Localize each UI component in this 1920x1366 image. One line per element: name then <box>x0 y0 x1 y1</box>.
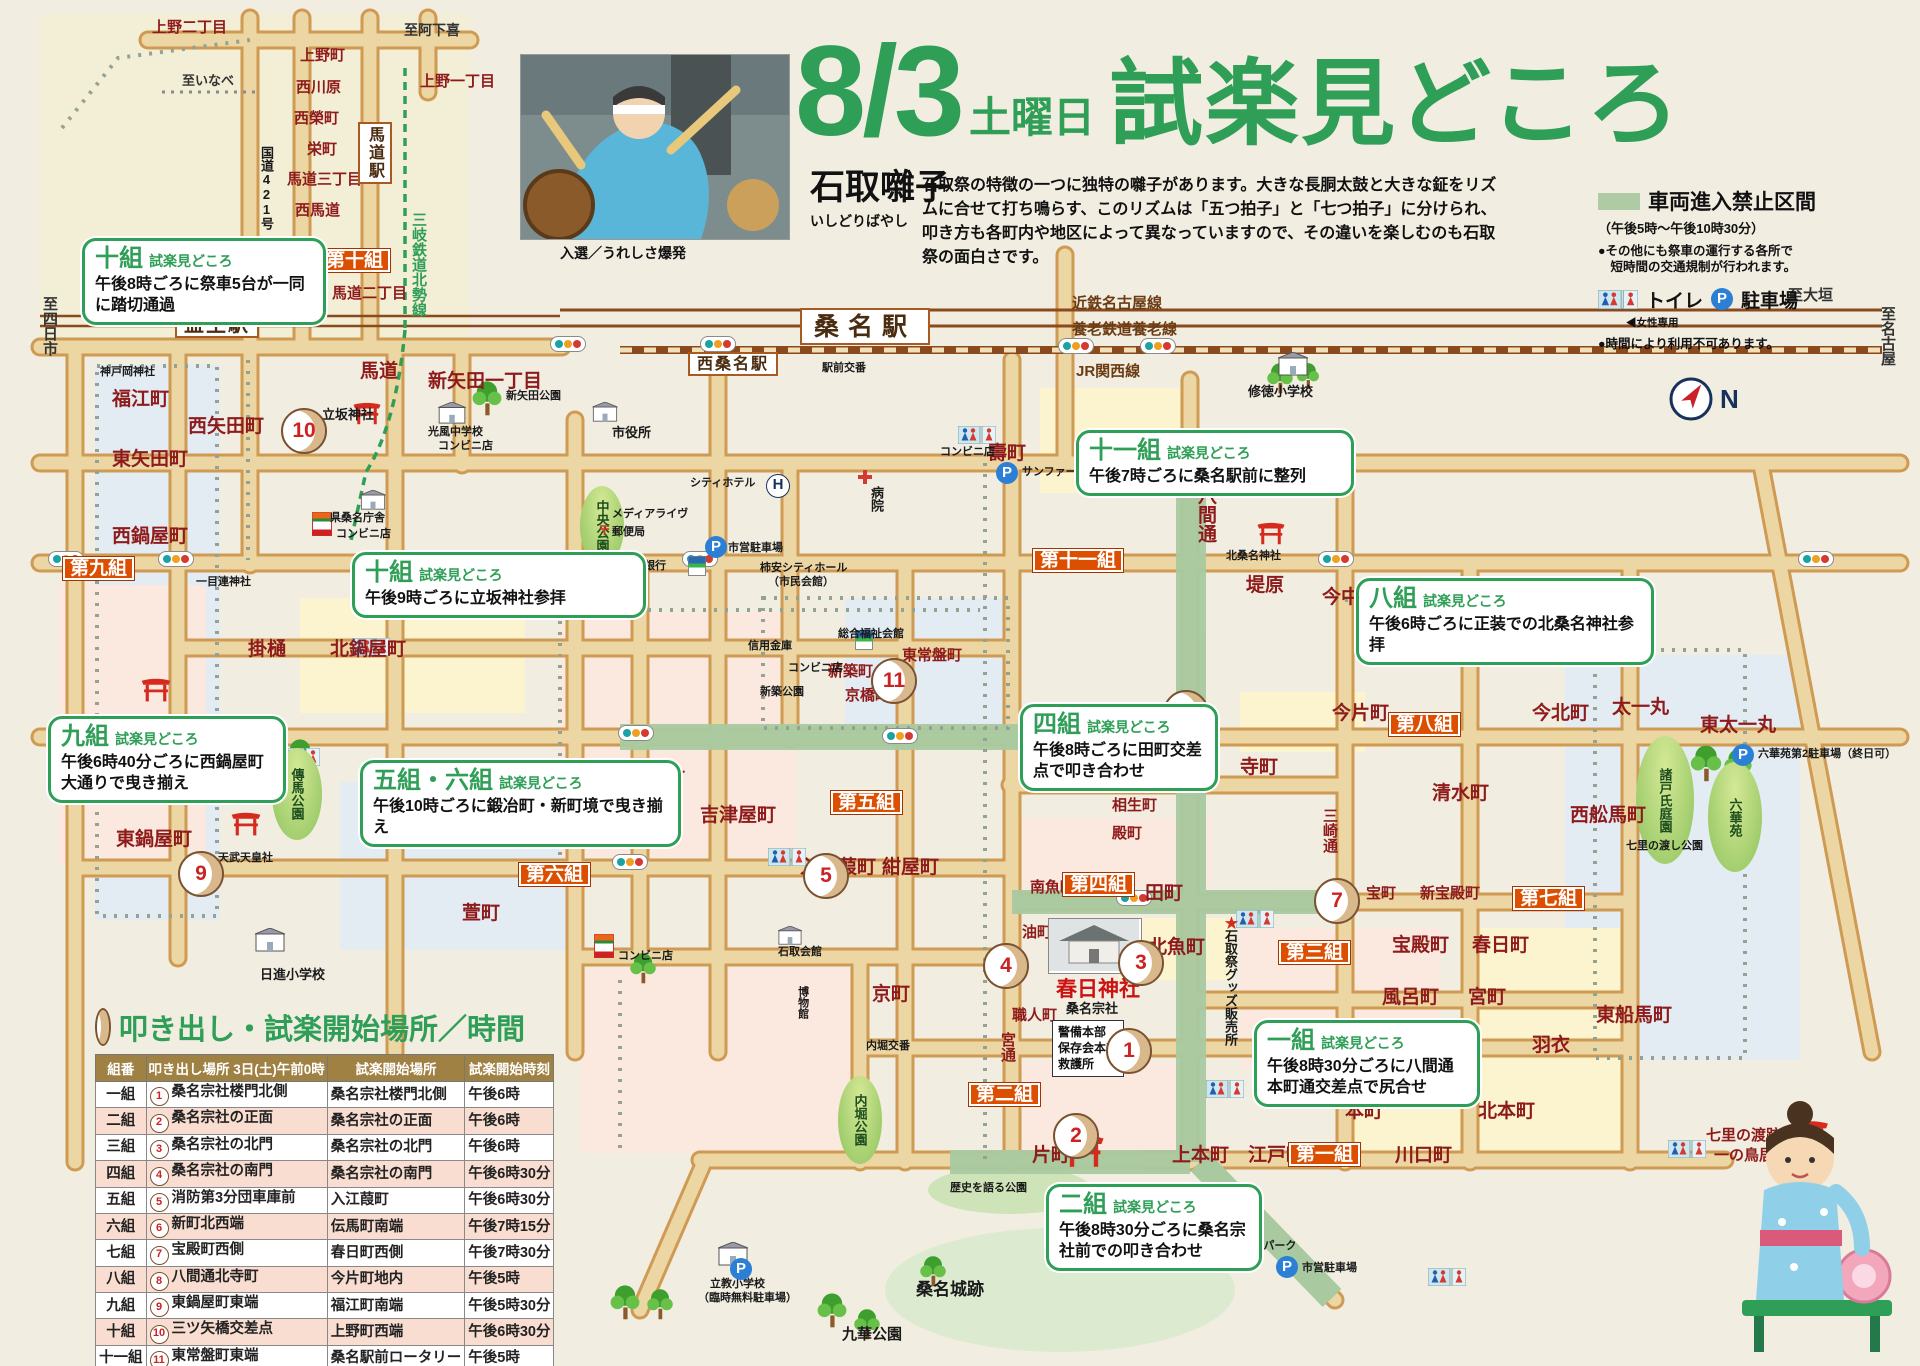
place-soja-label: 桑名宗社 <box>1066 1002 1118 1017</box>
callout-group: 二組 <box>1059 1191 1107 1218</box>
photo-caption: 入選／うれしさ爆発 <box>560 243 686 263</box>
table-row: 一組1桑名宗社楼門北側桑名宗社楼門北側午後6時 <box>96 1082 554 1108</box>
cell-group: 六組 <box>96 1213 147 1239</box>
cell-place: 桑名宗社の南門 <box>327 1161 465 1187</box>
cell-place: 春日町西側 <box>327 1240 465 1266</box>
place-label: 日進小学校 <box>260 968 325 983</box>
cell-group: 九組 <box>96 1293 147 1319</box>
callout-body: 午後8時ごろに田町交差点で叩き合わせ <box>1033 741 1205 783</box>
callout-body: 午後6時40分ごろに西鍋屋町大通りで曳き揃え <box>61 753 273 795</box>
group-box-1: 第一組 <box>1288 1142 1361 1167</box>
no-entry-time: （午後5時～午後10時30分） <box>1598 218 1898 237</box>
park-moroto-label: 諸戸氏庭園 <box>1656 768 1675 833</box>
place-label: 九華公園 <box>842 1326 902 1343</box>
place-label: 病院 <box>868 486 883 512</box>
place-label: 市営駐車場 <box>728 542 783 555</box>
parking-icon: P <box>1732 744 1754 766</box>
town-label: 羽衣 <box>1532 1036 1570 1055</box>
town-label: 西矢田町 <box>188 417 264 436</box>
parking-icon: P <box>996 462 1018 484</box>
callout-group10-crossing: 十組試楽見どころ 午後8時ごろに祭車5台が一同に踏切通過 <box>82 238 326 325</box>
cell-start-text: 桑名宗社の南門 <box>172 1163 274 1179</box>
group-box-4: 第四組 <box>1062 872 1135 897</box>
cell-place: 今片町地内 <box>327 1266 465 1292</box>
place-label: 神戸岡神社 <box>100 366 155 379</box>
parking-label: 駐車場 <box>1741 286 1798 313</box>
cell-time: 午後6時 <box>465 1082 554 1108</box>
callout-group: 一組 <box>1267 1027 1315 1054</box>
town-label: 太一丸 <box>1612 698 1669 717</box>
town-label: 今片町 <box>1332 704 1389 723</box>
title-day: 土曜日 <box>969 97 1095 139</box>
no-entry-swatch <box>1598 193 1640 210</box>
group-box-7: 第七組 <box>1512 886 1585 911</box>
town-label: 堤原 <box>1246 576 1284 595</box>
legend-note1b: 短時間の交通規制が行われます。 <box>1598 259 1898 275</box>
callout-group9: 九組試楽見どころ 午後6時40分ごろに西鍋屋町大通りで曳き揃え <box>48 716 286 803</box>
rail-jr-label: JR関西線 <box>1076 360 1140 381</box>
place-label: メディアライヴ <box>612 508 688 521</box>
cell-group: 三組 <box>96 1134 147 1160</box>
group-box-10: 第十組 <box>318 248 391 273</box>
town-label: 上野一丁目 <box>420 74 495 89</box>
callout-body: 午後8時ごろに祭車5台が一同に踏切通過 <box>95 275 313 317</box>
town-label: 馬道三丁目 <box>287 172 362 187</box>
callout-body: 午後8時30分ごろに桑名宗社前での叩き合わせ <box>1059 1221 1249 1263</box>
town-label: 西舩馬町 <box>1570 806 1646 825</box>
table-row: 二組2桑名宗社の正面桑名宗社の正面午後6時 <box>96 1108 554 1134</box>
town-label: 殿町 <box>1112 826 1142 841</box>
toilet-icon <box>1598 290 1638 309</box>
town-label: 西川原 <box>296 80 341 95</box>
town-label: 新宝殿町 <box>1420 886 1480 901</box>
legend-note2: ●時間により利用不可あります。 <box>1598 336 1898 352</box>
rail-sangi-label: 三岐鉄道北勢線 <box>408 212 429 317</box>
callout-head: 十一組試楽見どころ <box>1089 438 1341 464</box>
conbini-label: コンビニ店 <box>940 446 995 459</box>
town-label: 今北町 <box>1532 704 1589 723</box>
table-row: 十組10三ツ矢橋交差点上野町西端午後6時30分 <box>96 1319 554 1345</box>
town-label: 川口町 <box>1395 1146 1452 1165</box>
drum-number-icon: 4 <box>150 1167 169 1186</box>
callout-tag: 試楽見どころ <box>1087 719 1171 735</box>
cell-time: 午後5時 <box>465 1345 554 1366</box>
callout-tag: 試楽見どころ <box>1423 593 1507 609</box>
callout-tag: 試楽見どころ <box>499 775 583 791</box>
cell-start-text: 消防第3分団車庫前 <box>172 1190 296 1206</box>
town-label: 西馬道 <box>295 203 340 218</box>
title-main: 試楽見どころ <box>1109 62 1682 147</box>
cell-group: 十一組 <box>96 1345 147 1366</box>
place-label: シティホテル <box>690 477 755 490</box>
town-label: 萱町 <box>462 904 500 923</box>
cell-start-text: 桑名宗社の北門 <box>172 1137 274 1153</box>
place-label: 市営駐車場 <box>1302 1262 1357 1275</box>
town-label: 北鍋屋町 <box>330 640 406 659</box>
callout-body: 午後7時ごろに桑名駅前に整列 <box>1089 467 1341 488</box>
drum-number-icon: 5 <box>150 1193 169 1212</box>
goods-stand-label: ★石取祭グッズ販売所 <box>1222 916 1237 1046</box>
cell-start: 10三ツ矢橋交差点 <box>146 1319 327 1345</box>
callout-tag: 試楽見どころ <box>1167 445 1251 461</box>
no-entry-label: 車両進入禁止区間 <box>1648 186 1816 216</box>
schedule-table: 組番 叩き出し場所 3日(土)午前0時 試楽開始場所 試楽開始時刻 一組1桑名宗… <box>95 1054 554 1366</box>
cell-start-text: 三ツ矢橋交差点 <box>172 1321 274 1337</box>
town-label: 掛樋 <box>248 640 286 659</box>
park-rokkaen-label: 六華苑 <box>1726 798 1745 837</box>
callout-group5-6: 五組・六組試楽見どころ 午後10時ごろに鍛冶町・新町境で曳き揃え <box>360 760 681 847</box>
callout-group: 十組 <box>365 559 413 586</box>
callout-tag: 試楽見どころ <box>1113 1199 1197 1215</box>
drum-number-icon: 7 <box>150 1246 169 1265</box>
conbini-label: コンビニ店 <box>788 662 843 675</box>
town-label: 東鍋屋町 <box>116 830 192 849</box>
place-label: 郵便局 <box>612 526 645 539</box>
place-label: 立教小学校 <box>710 1278 765 1291</box>
town-label: 上野二丁目 <box>152 20 227 35</box>
town-label: 京町 <box>872 985 910 1004</box>
cell-start: 11東常盤町東端 <box>146 1345 327 1366</box>
rail-kintetsu-label: 近鉄名古屋線 <box>1072 292 1162 313</box>
table-row: 八組8八間通北寺町今片町地内午後5時 <box>96 1266 554 1292</box>
table-row: 四組4桑名宗社の南門桑名宗社の南門午後6時30分 <box>96 1161 554 1187</box>
town-label: 西榮町 <box>294 111 339 126</box>
place-label: 歴史を語る公園 <box>950 1182 1027 1195</box>
place-label: 石取会館 <box>778 946 822 959</box>
town-label: 東常盤町 <box>902 648 962 663</box>
park-rokkaen: 六華苑 <box>1708 762 1762 872</box>
town-label: 田町 <box>1145 884 1183 903</box>
callout-tag: 試楽見どころ <box>115 731 199 747</box>
place-label: 光風中学校 <box>428 426 483 439</box>
drum-number-icon: 9 <box>150 1298 169 1317</box>
legend-no-entry-row: 車両進入禁止区間 <box>1598 186 1898 216</box>
cell-start-text: 東常盤町東端 <box>172 1348 259 1364</box>
table-row: 十一組11東常盤町東端桑名駅前ロータリー午後5時 <box>96 1345 554 1366</box>
cell-start: 2桑名宗社の正面 <box>146 1108 327 1134</box>
conbini-label: コンビニ店 <box>336 528 391 541</box>
town-label: 宝殿町 <box>1392 936 1449 955</box>
group-box-3: 第三組 <box>1278 940 1351 965</box>
conbini-label: コンビニ店 <box>618 950 673 963</box>
town-label: 三崎通 <box>1322 808 1337 853</box>
compass-n-label: N <box>1720 384 1739 415</box>
star-icon: ★ <box>1223 916 1238 929</box>
town-label: 上本町 <box>1172 1146 1229 1165</box>
place-label: 北桑名神社 <box>1226 550 1281 563</box>
callout-group: 四組 <box>1033 711 1081 738</box>
town-label: 紺屋町 <box>882 858 939 877</box>
post-office-icon: 〒 <box>598 524 611 539</box>
cell-start: 3桑名宗社の北門 <box>146 1134 327 1160</box>
place-label: 駅前交番 <box>822 362 866 375</box>
town-label: 春日町 <box>1472 936 1529 955</box>
cell-time: 午後6時 <box>465 1108 554 1134</box>
cell-start-text: 桑名宗社楼門北側 <box>172 1084 288 1100</box>
town-label: 福江町 <box>112 390 169 409</box>
place-label: 博物館 <box>796 986 809 1019</box>
table-row: 三組3桑名宗社の北門桑名宗社の北門午後6時 <box>96 1134 554 1160</box>
group-box-2: 第二組 <box>968 1082 1041 1107</box>
place-label: 市役所 <box>612 426 651 441</box>
parking-icon: P <box>1276 1256 1298 1278</box>
schedule-title-row: 叩き出し・試楽開始場所／時間 <box>95 1006 525 1048</box>
callout-head: 九組試楽見どころ <box>61 724 273 750</box>
callout-group4: 四組試楽見どころ 午後8時ごろに田町交差点で叩き合わせ <box>1020 704 1218 791</box>
place-label: 七里の渡し公園 <box>1626 840 1703 853</box>
town-label: 相生町 <box>1112 798 1157 813</box>
place-label: 一目連神社 <box>196 576 251 589</box>
town-label: 馬道二丁目 <box>332 286 407 301</box>
cell-time: 午後6時30分 <box>465 1319 554 1345</box>
cell-place: 入江葭町 <box>327 1187 465 1213</box>
town-label: 宮町 <box>1468 988 1506 1007</box>
callout-body: 午後8時30分ごろに八間通本町通交差点で尻合せ <box>1267 1057 1467 1099</box>
cell-place: 福江町南端 <box>327 1293 465 1319</box>
town-label: 馬道 <box>360 362 398 381</box>
town-label: 寺町 <box>1240 758 1278 777</box>
cell-place: 桑名宗社の北門 <box>327 1134 465 1160</box>
callout-head: 八組試楽見どころ <box>1369 586 1641 612</box>
drum-marker-5: 5 <box>803 853 849 899</box>
table-row: 六組6新町北西端伝馬町南端午後7時15分 <box>96 1213 554 1239</box>
drum-number-icon: 10 <box>150 1325 169 1344</box>
callout-head: 五組・六組試楽見どころ <box>373 768 668 794</box>
callout-group: 八組 <box>1369 585 1417 612</box>
festival-map-poster: { "icons":{"p":"P","n":"N","h":"H","post… <box>0 0 1920 1366</box>
callout-body: 午後6時ごろに正装での北桑名神社参拝 <box>1369 615 1641 657</box>
callout-tag: 試楽見どころ <box>149 253 233 269</box>
cell-start-text: 桑名宗社の正面 <box>172 1110 274 1126</box>
cell-start-text: 新町北西端 <box>172 1216 245 1232</box>
legend-note1a: ●その他にも祭車の運行する各所で <box>1598 243 1898 259</box>
cell-start: 4桑名宗社の南門 <box>146 1161 327 1187</box>
cell-group: 一組 <box>96 1082 147 1108</box>
cell-place: 桑名駅前ロータリー <box>327 1345 465 1366</box>
cell-time: 午後5時30分 <box>465 1293 554 1319</box>
drum-marker-1: 1 <box>1106 1028 1152 1074</box>
place-label: 新築公園 <box>760 686 804 699</box>
drum-marker-9: 9 <box>178 851 224 897</box>
town-label: 北本町 <box>1478 1102 1535 1121</box>
town-label: 東太一丸 <box>1700 716 1776 735</box>
town-label: 吉津屋町 <box>700 806 776 825</box>
cell-start: 9東鍋屋町東端 <box>146 1293 327 1319</box>
callout-head: 十組試楽見どころ <box>365 560 633 586</box>
intro-block: 石取囃子 いしどりばやし 石取祭の特徴の一つに独特の囃子があります。大きな長胴太… <box>810 170 1510 231</box>
col-header: 試楽開始時刻 <box>465 1055 554 1082</box>
table-row: 五組5消防第3分団車庫前入江葭町午後6時30分 <box>96 1187 554 1213</box>
place-label: （臨時無料駐車場） <box>698 1292 797 1305</box>
cell-place: 桑名宗社の正面 <box>327 1108 465 1134</box>
place-label: 天武天皇社 <box>218 852 273 865</box>
cell-time: 午後7時15分 <box>465 1213 554 1239</box>
cell-start-text: 八間通北寺町 <box>172 1269 259 1285</box>
cell-start: 1桑名宗社楼門北側 <box>146 1082 327 1108</box>
group-box-5: 第五組 <box>830 790 903 815</box>
group-box-6: 第六組 <box>518 862 591 887</box>
park-uchibori: 内堀公園 <box>838 1076 882 1164</box>
drum-number-icon: 3 <box>150 1140 169 1159</box>
cell-group: 四組 <box>96 1161 147 1187</box>
park-uchibori-label: 内堀公園 <box>851 1094 870 1146</box>
direction-ageki: 至阿下喜 <box>404 20 460 40</box>
drum-number-icon: 11 <box>150 1351 169 1366</box>
cell-start: 7宝殿町西側 <box>146 1240 327 1266</box>
drum-number-icon: 1 <box>150 1087 169 1106</box>
toilet-note: ◀女性専用 <box>1626 315 1898 330</box>
drum-number-icon: 6 <box>150 1219 169 1238</box>
cell-start-text: 東鍋屋町東端 <box>172 1295 259 1311</box>
parking-icon: P <box>705 536 727 558</box>
drum-marker-4: 4 <box>983 943 1029 989</box>
parking-icon: P <box>1711 288 1733 310</box>
town-label: 新矢田一丁目 <box>428 372 542 391</box>
place-label: 修徳小学校 <box>1248 385 1313 400</box>
town-label: 清水町 <box>1432 784 1489 803</box>
goods-stand-text: 石取祭グッズ販売所 <box>1223 929 1238 1046</box>
cell-place: 伝馬町南端 <box>327 1213 465 1239</box>
station-umamichi: 馬道駅 <box>358 122 392 184</box>
callout-group: 五組・六組 <box>373 767 493 794</box>
cell-group: 五組 <box>96 1187 147 1213</box>
schedule-title: 叩き出し・試楽開始場所／時間 <box>119 1006 525 1048</box>
callout-group8: 八組試楽見どころ 午後6時ごろに正装での北桑名神社参拝 <box>1356 578 1654 665</box>
station-nishikuwana: 西桑名駅 <box>688 352 778 376</box>
group-box-11: 第十一組 <box>1032 548 1124 573</box>
callout-body: 午後9時ごろに立坂神社参拝 <box>365 589 633 610</box>
mascot-illustration <box>1712 1062 1912 1362</box>
place-label: コンビニ店 <box>438 440 493 453</box>
place-label: （市民会館） <box>768 576 834 589</box>
intro-body: 石取祭の特徴の一つに独特の囃子があります。大きな長胴太鼓と大きな鉦をリズムに合せ… <box>922 174 1510 270</box>
cell-place: 上野町西端 <box>327 1319 465 1345</box>
drum-marker-10: 10 <box>281 408 327 454</box>
parking-icon: P <box>730 1258 752 1280</box>
place-label: 国道421号 <box>258 146 273 230</box>
cell-start: 8八間通北寺町 <box>146 1266 327 1292</box>
drum-marker-3: 3 <box>1118 940 1164 986</box>
cell-time: 午後7時30分 <box>465 1240 554 1266</box>
rail-yoro-label: 養老鉄道養老線 <box>1072 318 1177 339</box>
place-label: 桑名城跡 <box>916 1280 984 1300</box>
group-box-8: 第八組 <box>1388 712 1461 737</box>
town-label: 東矢田町 <box>112 450 188 469</box>
table-row: 七組7宝殿町西側春日町西側午後7時30分 <box>96 1240 554 1266</box>
col-header: 組番 <box>96 1055 147 1082</box>
col-header: 叩き出し場所 3日(土)午前0時 <box>146 1055 327 1082</box>
cell-start: 6新町北西端 <box>146 1213 327 1239</box>
cell-group: 七組 <box>96 1240 147 1266</box>
place-label: 柿安シティホール <box>760 562 847 575</box>
callout-head: 二組試楽見どころ <box>1059 1192 1249 1218</box>
town-label: 上野町 <box>300 48 345 63</box>
title-date: 8/3 <box>795 38 961 147</box>
drum-number-icon: 2 <box>150 1114 169 1133</box>
station-kuwana: 桑名駅 <box>800 308 930 345</box>
cell-group: 十組 <box>96 1319 147 1345</box>
place-label: 内堀交番 <box>866 1040 910 1053</box>
compass: N <box>1668 376 1739 422</box>
place-label: 立坂神社 <box>322 408 374 423</box>
col-header: 試楽開始場所 <box>327 1055 465 1082</box>
cell-time: 午後6時30分 <box>465 1161 554 1187</box>
place-label: 信用金庫 <box>748 640 792 653</box>
callout-group2: 二組試楽見どころ 午後8時30分ごろに桑名宗社前での叩き合わせ <box>1046 1184 1262 1271</box>
direction-yokkaichi: 至四日市 <box>40 296 61 356</box>
table-row: 九組9東鍋屋町東端福江町南端午後5時30分 <box>96 1293 554 1319</box>
cell-time: 午後6時30分 <box>465 1187 554 1213</box>
map-legend: 車両進入禁止区間 （午後5時～午後10時30分） ●その他にも祭車の運行する各所… <box>1598 186 1898 352</box>
place-label: 新矢田公園 <box>506 390 561 403</box>
cell-time: 午後5時 <box>465 1266 554 1292</box>
drum-marker-7: 7 <box>1314 878 1360 924</box>
legend-facility-row: トイレ P 駐車場 <box>1598 286 1898 313</box>
group-box-9: 第九組 <box>62 556 135 581</box>
callout-head: 十組試楽見どころ <box>95 246 313 272</box>
callout-group: 九組 <box>61 723 109 750</box>
cell-time: 午後6時 <box>465 1134 554 1160</box>
schedule-header-row: 組番 叩き出し場所 3日(土)午前0時 試楽開始場所 試楽開始時刻 <box>96 1055 554 1082</box>
callout-group: 十一組 <box>1089 437 1161 464</box>
cell-place: 桑名宗社楼門北側 <box>327 1082 465 1108</box>
place-label: 県桑名庁舎 <box>330 512 385 525</box>
cell-group: 八組 <box>96 1266 147 1292</box>
park-temma-label: 傳馬公園 <box>288 768 307 820</box>
cell-start: 5消防第3分団車庫前 <box>146 1187 327 1213</box>
drum-icon <box>95 1008 111 1046</box>
toilet-label: トイレ <box>1646 286 1703 313</box>
festival-photo <box>520 54 790 240</box>
callout-group11: 十一組試楽見どころ 午後7時ごろに桑名駅前に整列 <box>1076 430 1354 496</box>
callout-head: 四組試楽見どころ <box>1033 712 1205 738</box>
town-label: 職人町 <box>1012 1008 1057 1023</box>
direction-inabe: 至いなべ <box>182 70 234 89</box>
callout-group1: 一組試楽見どころ 午後8時30分ごろに八間通本町通交差点で尻合せ <box>1254 1020 1480 1107</box>
compass-icon <box>1668 376 1714 422</box>
drum-marker-11: 11 <box>871 658 917 704</box>
town-label: 東船馬町 <box>1596 1006 1672 1025</box>
town-label: 栄町 <box>307 142 337 157</box>
schedule-table-block: 叩き出し・試楽開始場所／時間 組番 叩き出し場所 3日(土)午前0時 試楽開始場… <box>95 1006 525 1366</box>
callout-group10-shrine: 十組試楽見どころ 午後9時ごろに立坂神社参拝 <box>352 552 646 618</box>
callout-body: 午後10時ごろに鍛冶町・新町境で曳き揃え <box>373 797 668 839</box>
callout-head: 一組試楽見どころ <box>1267 1028 1467 1054</box>
callout-group: 十組 <box>95 245 143 272</box>
drum-number-icon: 8 <box>150 1272 169 1291</box>
town-label: 風呂町 <box>1382 988 1439 1007</box>
town-label: 宮通 <box>1000 1032 1015 1062</box>
drum-marker-2: 2 <box>1053 1113 1099 1159</box>
callout-tag: 試楽見どころ <box>419 567 503 583</box>
town-label: 宝町 <box>1366 886 1396 901</box>
place-label: 総合福祉会館 <box>838 628 904 641</box>
place-label: 六華苑第2駐車場（終日可） <box>1758 748 1896 761</box>
callout-tag: 試楽見どころ <box>1321 1035 1405 1051</box>
town-label: 西鍋屋町 <box>112 527 188 546</box>
hotel-icon: H <box>766 474 790 498</box>
cell-start-text: 宝殿町西側 <box>172 1242 245 1258</box>
page-title: 8/3 土曜日 試楽見どころ <box>795 38 1682 147</box>
cell-group: 二組 <box>96 1108 147 1134</box>
